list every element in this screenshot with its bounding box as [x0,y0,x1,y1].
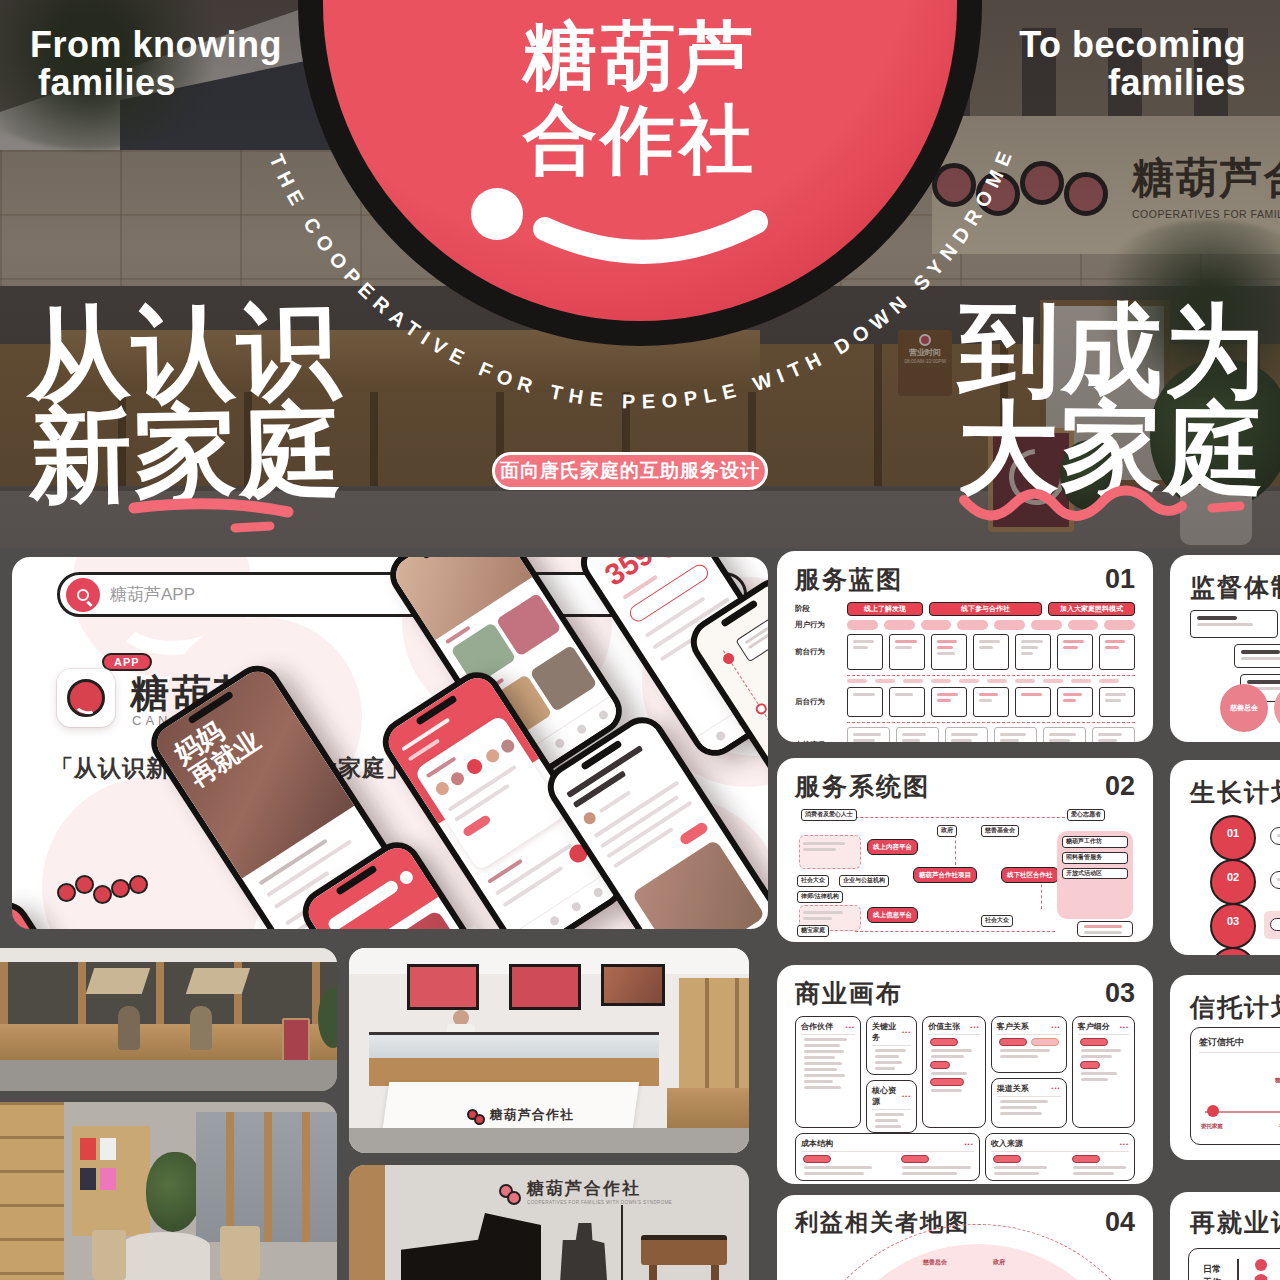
headline-left-line2: 新家庭 [28,401,345,507]
trust-box-title: 签订信托中 [1199,1036,1280,1053]
row-label: 前台行为 [795,634,841,670]
panel-business-canvas: 商业画布 03 合作伙伴 关键业务 核心资源 [777,965,1153,1184]
haw-ball-icon [67,679,105,717]
node-care: 照料看管服务 [1062,852,1128,864]
panel-trust-plan: 信托计划 签订信托中 糖葫芦合作社 委托家庭 寻找契约家庭 [1170,975,1280,1160]
node-public-2: 社会大众 [981,915,1013,927]
node-public: 社会大众 [797,875,829,887]
trust-node-top: 糖葫芦合作社 [1275,1077,1280,1084]
node-consumers: 消费者及爱心人士 [801,809,857,821]
photo-counter-shop: 糖葫芦合作社 [349,948,749,1153]
headline-right: 到成为 大家庭 [957,300,1268,501]
canvas-core-resources: 核心资源 [866,1080,917,1133]
smile-icon [298,0,982,346]
panel-title: 生长计划 [1190,776,1280,809]
legend-box [1077,921,1133,937]
ring-label: 政府 [993,1258,1005,1267]
ring-label: 慈善总会 [923,1258,947,1267]
canvas-revenue: 收入来源 [985,1133,1135,1181]
music-room-logo: 糖葫芦合作社 [527,1177,672,1200]
growth-timeline: 01 02 03 04 [1190,815,1280,955]
music-room-logo-en: COOPERATIVES FOR FAMILIES WITH DOWN'S SY… [527,1200,672,1205]
node-enterprise: 企业与公益机构 [839,875,889,887]
row-label: 支持流程 [795,727,841,742]
canvas-partners: 合作伙伴 [795,1016,861,1128]
growth-step-1: 01 [1210,815,1256,861]
photo-exterior-bench [0,948,337,1091]
canvas-cost-structure: 成本结构 [795,1133,980,1181]
panel-service-system-map: 服务系统图 02 消费者及爱心人士 政府 慈善基金会 爱心志愿者 线上内容平台 … [777,758,1153,942]
touchpoint-tags [847,679,1135,683]
subtitle-badge: 面向唐氏家庭的互助服务设计 [492,452,768,490]
tagline-right-line1: To becoming [1019,26,1246,64]
canvas-customer-segments: 客户细分 [1072,1016,1135,1128]
canvas-customer-relations: 客户关系 [991,1016,1067,1073]
supervision-diagram: 慈善总会 [1190,610,1280,730]
node-online-content: 线上内容平台 [867,839,918,855]
growth-step-3: 03 [1210,903,1256,949]
content-grid: APP 糖葫芦 CANDIED HAWS 「从认识新家庭，到成为大家庭」 [0,548,1280,1280]
row-label: 阶段 [795,602,841,616]
trust-node-left: 委托家庭 [1201,1123,1223,1130]
daily-tag-line2: 工作 [1195,1276,1229,1280]
canvas-key-business: 关键业务 [866,1016,917,1075]
panel-title: 信托计划 [1190,991,1280,1024]
panel-number: 02 [1105,771,1135,802]
panel-growth-plan: 生长计划 01 02 03 04 [1170,760,1280,955]
tagline-right: To becoming families [1019,26,1246,102]
panel-service-blueprint: 服务蓝图 01 阶段 线上了解发现 线下参与合作社 加入大家庭照料模式 用户行为… [777,551,1153,742]
panel-number: 04 [1105,1207,1135,1238]
system-diagram: 消费者及爱心人士 政府 慈善基金会 爱心志愿者 线上内容平台 社会大众 企业与公… [795,809,1135,937]
stage-bar: 加入大家庭照料模式 [1048,602,1135,616]
panel-reemployment: 再就业计划 日常 工作 ••• [1170,1192,1280,1280]
headline-left: 从认识 新家庭 [26,300,344,507]
tagline-left-line2: families [30,64,282,102]
node-offline-coop: 线下社区合作社 [1001,867,1059,883]
app-showcase-card: APP 糖葫芦 CANDIED HAWS 「从认识新家庭，到成为大家庭」 [12,557,768,929]
node-workshop: 糖葫芦工作坊 [1062,836,1128,848]
daily-work-box: 日常 工作 ••• [1188,1248,1280,1280]
node-volunteer: 爱心志愿者 [1067,809,1105,821]
growth-step-2: 02 [1210,859,1256,905]
photo-reading-room [0,1102,337,1280]
tagline-left-line1: From knowing [30,26,282,64]
supervision-circle: 慈善总会 [1220,684,1268,732]
node-group-services: 糖葫芦工作坊 照料看管服务 开放式活动区 [1057,831,1133,919]
node-charity: 慈善基金会 [981,825,1019,837]
row-label: 用户行为 [795,620,841,630]
stage-bar: 线下参与合作社 [929,602,1042,616]
panel-title: 再就业计划 [1190,1206,1280,1239]
node-group-online [799,835,861,869]
panel-supervision: 监督体制 慈善总会 [1170,555,1280,742]
score-value: 359 [599,557,660,593]
candied-haws-logo [57,875,157,909]
node-government: 政府 [937,825,957,837]
tagline-left: From knowing families [30,26,282,102]
panel-number: 03 [1105,978,1135,1009]
brand-logo-circle: 糖葫芦 合作社 [298,0,982,346]
panel-number: 01 [1105,564,1135,595]
trust-diagram: 签订信托中 糖葫芦合作社 委托家庭 寻找契约家庭 [1190,1027,1280,1145]
panel-title: 商业画布 [795,977,903,1010]
app-icon [57,669,115,727]
daily-tag-line1: 日常 [1195,1263,1229,1276]
stage-bar: 线上了解发现 [847,602,923,616]
tagline-right-line2: families [1019,64,1246,102]
node-center-project: 糖葫芦合作社项目 [913,867,977,883]
row-label: 后台行为 [795,687,841,717]
headline-right-line2: 大家庭 [957,399,1267,501]
photo-music-room: 糖葫芦合作社 COOPERATIVES FOR FAMILIES WITH DO… [349,1165,749,1280]
panel-title: 服务蓝图 [795,563,903,596]
workers-icon [1247,1257,1280,1280]
node-lawyer: 律师/法律机构 [797,891,843,903]
node-open-zone: 开放式活动区 [1062,868,1128,880]
headline-left-line1: 从认识 [26,300,343,406]
panel-title: 服务系统图 [795,770,930,803]
canvas-channels: 渠道关系 [991,1078,1067,1128]
headline-right-line1: 到成为 [958,300,1268,402]
panel-stakeholder-map: 利益相关者地图 04 慈善总会 政府 公益机构 相关企业 [777,1195,1153,1280]
node-family: 糖宝家庭 [797,925,829,937]
growth-step-4: 04 [1210,947,1256,955]
counter-logo: 糖葫芦合作社 [490,1106,574,1124]
stakeholder-rings: 慈善总会 政府 公益机构 相关企业 [795,1244,1135,1280]
canvas-value-proposition: 价值主张 [922,1016,985,1128]
search-icon [66,578,100,612]
hero-section: 糖葫芦合作 COOPERATIVES FOR FAMILIES WITH DOW… [0,0,1280,548]
node-online-info: 线上信息平台 [867,907,918,923]
panel-title: 监督体制 [1190,571,1280,604]
search-input[interactable] [110,585,410,605]
